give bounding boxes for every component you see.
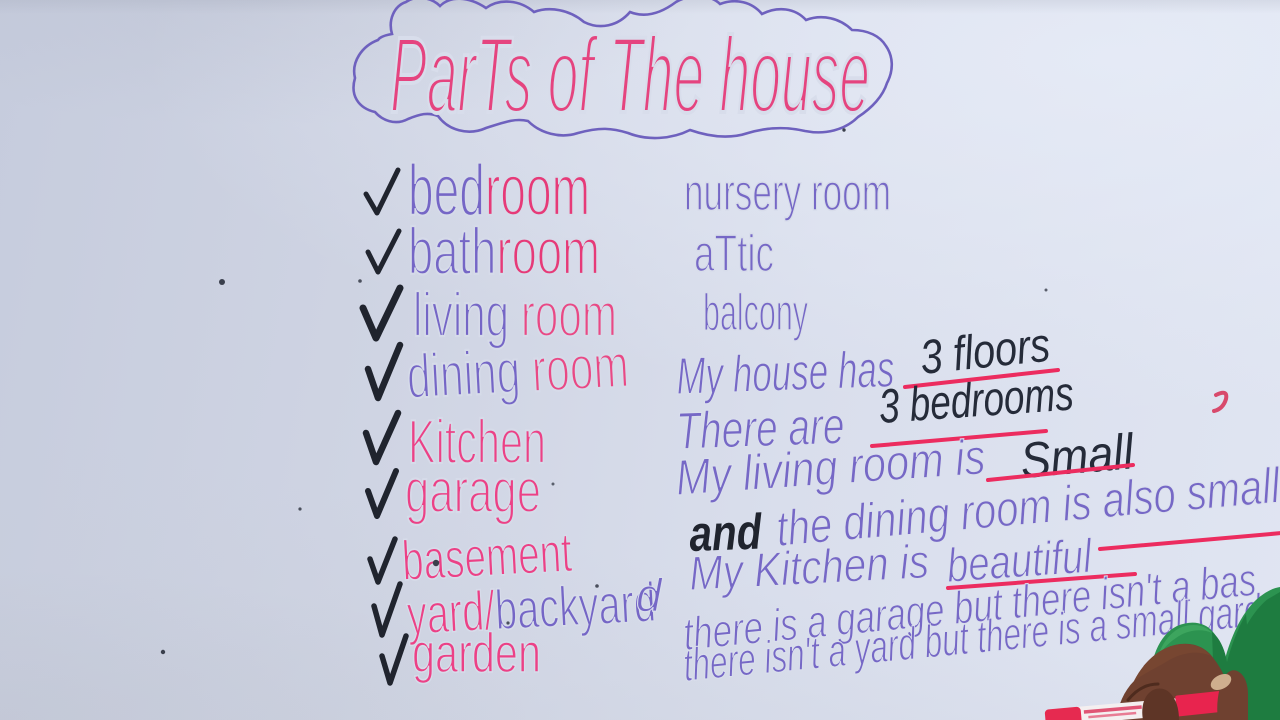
svg-text:garage: garage [405, 457, 541, 526]
svg-text:My house has: My house has [675, 340, 895, 406]
svg-text:aTtic: aTtic [694, 225, 774, 283]
svg-text:garden: garden [412, 621, 541, 684]
svg-text:3 bedrooms: 3 bedrooms [877, 367, 1075, 433]
svg-text:balcony: balcony [703, 284, 808, 342]
svg-text:nursery room: nursery room [684, 164, 891, 222]
svg-text:dining room: dining room [405, 331, 630, 412]
svg-text:ParTs of The house: ParTs of The house [390, 14, 870, 135]
svg-text:d: d [636, 569, 663, 621]
svg-text:bathroom: bathroom [408, 214, 600, 288]
